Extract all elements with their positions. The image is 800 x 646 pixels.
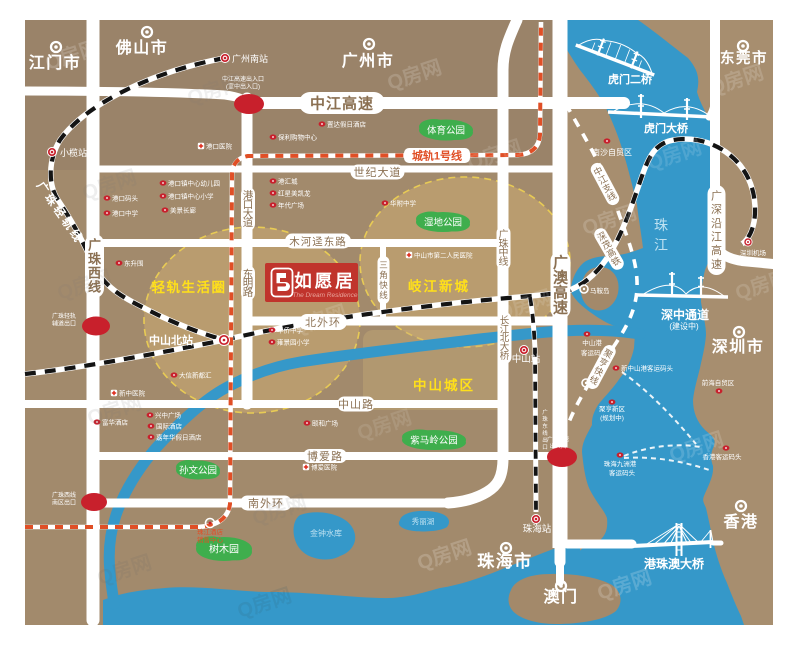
svg-text:珠海市: 珠海市 [477,551,533,571]
svg-text:深圳市: 深圳市 [712,337,765,356]
svg-text:港口医院: 港口医院 [206,141,233,150]
svg-text:中江高速: 中江高速 [310,94,374,112]
svg-text:珠海九洲港: 珠海九洲港 [604,459,637,468]
svg-text:轻轨生活圈: 轻轨生活圈 [152,279,227,295]
svg-text:速: 速 [553,299,568,317]
svg-text:树木园: 树木园 [209,543,239,556]
svg-text:年代广场: 年代广场 [278,200,305,209]
svg-text:中山市第二人民医院: 中山市第二人民医院 [414,250,473,259]
svg-text:珠: 珠 [542,415,548,423]
svg-text:沿: 沿 [711,217,722,230]
svg-text:港口镇中心小学: 港口镇中心小学 [168,191,214,200]
svg-text:广: 广 [542,408,548,416]
svg-text:木河迳东路: 木河迳东路 [289,235,347,248]
svg-text:广: 广 [711,190,722,203]
svg-text:颐和广场: 颐和广场 [312,418,339,427]
svg-text:红星美凯龙: 红星美凯龙 [278,188,311,197]
svg-text:三: 三 [379,260,388,270]
svg-text:东: 东 [542,422,548,430]
svg-text:桥: 桥 [500,350,510,362]
svg-text:澳门: 澳门 [543,587,578,606]
svg-text:博爱医院: 博爱医院 [311,462,338,471]
svg-text:深圳机场: 深圳机场 [740,248,767,257]
svg-text:博爱路: 博爱路 [307,450,343,463]
svg-text:(建设中): (建设中) [669,321,699,331]
svg-text:金钟水库: 金钟水库 [310,528,342,538]
svg-text:世纪大道: 世纪大道 [354,165,402,179]
svg-text:国际酒店: 国际酒店 [156,421,183,430]
svg-text:江: 江 [654,237,668,253]
svg-text:珠: 珠 [88,251,102,266]
svg-text:佛山市: 佛山市 [115,38,169,57]
svg-text:岐江新城: 岐江新城 [408,278,470,294]
svg-text:珠江酒店: 珠江酒店 [197,527,224,536]
svg-text:东莞市: 东莞市 [720,49,768,67]
svg-text:南区出口: 南区出口 [52,499,76,507]
svg-text:港口镇中心幼儿园: 港口镇中心幼儿园 [168,178,220,187]
svg-text:客运码头: 客运码头 [581,348,608,357]
svg-text:口: 口 [542,444,548,451]
svg-text:广州市: 广州市 [342,51,395,70]
svg-text:珠: 珠 [654,217,668,233]
svg-text:城轨1号线: 城轨1号线 [412,149,462,163]
svg-text:快: 快 [379,280,388,290]
svg-text:美景长廊: 美景长廊 [170,205,197,214]
svg-text:广: 广 [88,237,101,252]
svg-text:中山港: 中山港 [582,338,602,347]
svg-text:马鞍岛: 马鞍岛 [590,286,610,295]
svg-text:销售中心: 销售中心 [197,535,224,544]
svg-text:港汇城: 港汇城 [278,176,298,185]
svg-text:深: 深 [711,203,722,216]
svg-text:中山北站: 中山北站 [149,333,193,347]
svg-text:大信新都汇: 大信新都汇 [179,370,212,379]
svg-text:辅道出口: 辅道出口 [52,320,76,328]
svg-text:如愿居: 如愿居 [294,271,356,291]
svg-text:小榄站: 小榄站 [60,147,87,158]
svg-text:孙文公园: 孙文公园 [179,464,217,476]
svg-text:(规划中): (规划中) [600,413,624,422]
svg-text:新中山港客运码头: 新中山港客运码头 [621,363,674,372]
svg-text:南沙自贸区: 南沙自贸区 [592,147,632,157]
svg-text:客运码头: 客运码头 [609,468,636,477]
svg-text:兴中广场: 兴中广场 [155,410,182,419]
svg-text:珠海站: 珠海站 [523,523,552,535]
svg-text:广珠西线: 广珠西线 [52,491,76,499]
svg-text:中山站: 中山站 [512,353,541,365]
svg-text:紫马岭公园: 紫马岭公园 [410,434,458,446]
svg-text:出: 出 [542,436,548,444]
svg-text:出入口: 出入口 [550,442,567,450]
svg-text:线: 线 [542,429,548,437]
svg-text:华附中学: 华附中学 [390,198,417,207]
svg-text:The Dream Residence: The Dream Residence [292,292,357,299]
svg-text:香港: 香港 [722,512,758,531]
svg-text:路: 路 [243,286,254,299]
svg-text:速: 速 [711,258,722,271]
svg-text:聚亨新区: 聚亨新区 [599,404,626,413]
svg-text:虎门二桥: 虎门二桥 [608,72,653,86]
svg-text:港口中学: 港口中学 [112,208,139,217]
svg-text:体育公园: 体育公园 [427,124,465,136]
svg-text:线: 线 [379,290,388,300]
svg-text:保利购物中心: 保利购物中心 [278,132,318,141]
svg-text:置达假日酒店: 置达假日酒店 [327,119,367,128]
svg-text:线: 线 [499,255,509,268]
svg-text:秀丽湖: 秀丽湖 [412,516,435,526]
svg-text:高: 高 [711,243,722,257]
svg-text:中山路: 中山路 [338,398,374,411]
svg-text:中山城区: 中山城区 [413,377,475,393]
svg-text:深中通道: 深中通道 [661,307,709,322]
svg-text:东升围: 东升围 [124,258,144,267]
svg-text:广州南站: 广州南站 [232,53,268,64]
svg-text:广澳高速: 广澳高速 [547,435,570,443]
svg-text:前海自贸区: 前海自贸区 [702,378,735,387]
svg-text:嘉年华假日酒店: 嘉年华假日酒店 [156,432,202,441]
svg-text:广珠轻轨: 广珠轻轨 [52,312,76,320]
svg-text:港珠澳大桥: 港珠澳大桥 [644,556,705,571]
svg-text:江: 江 [711,231,722,244]
svg-text:角: 角 [379,270,388,280]
svg-text:湿地公园: 湿地公园 [424,216,462,228]
svg-text:雍景园小学: 雍景园小学 [277,337,310,346]
svg-text:虎门大桥: 虎门大桥 [644,121,689,135]
svg-text:道: 道 [243,216,254,229]
